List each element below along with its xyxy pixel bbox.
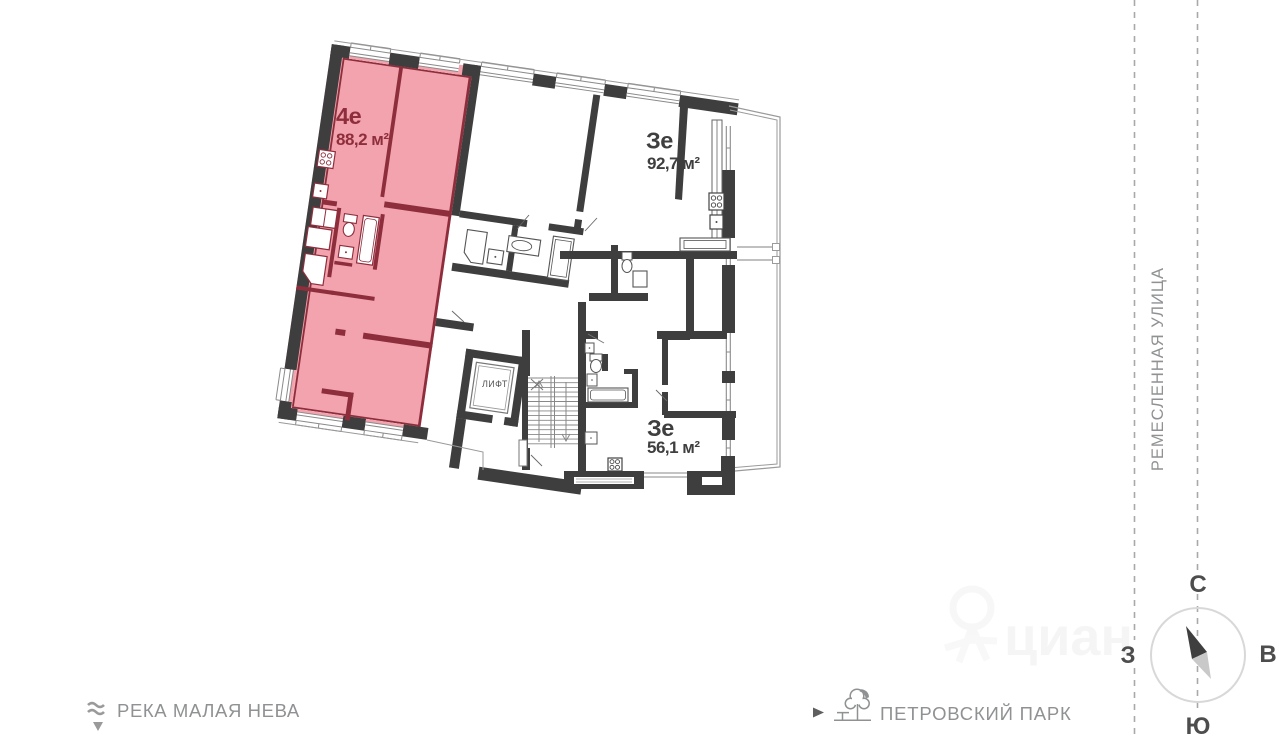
svg-text:88,2 м²: 88,2 м² bbox=[336, 130, 389, 149]
svg-text:РЕКА МАЛАЯ НЕВА: РЕКА МАЛАЯ НЕВА bbox=[117, 700, 300, 721]
svg-text:С: С bbox=[1189, 571, 1206, 598]
svg-text:РЕМЕСЛЕННАЯ УЛИЦА: РЕМЕСЛЕННАЯ УЛИЦА bbox=[1149, 267, 1167, 471]
svg-text:В: В bbox=[1259, 641, 1276, 668]
svg-text:56,1 м²: 56,1 м² bbox=[647, 438, 700, 457]
svg-text:4е: 4е bbox=[336, 103, 362, 129]
svg-text:92,7 м²: 92,7 м² bbox=[647, 154, 700, 173]
svg-text:Ю: Ю bbox=[1186, 713, 1211, 736]
svg-text:циан: циан bbox=[1004, 607, 1133, 667]
svg-text:ЛИФТ: ЛИФТ bbox=[482, 379, 508, 389]
svg-text:З: З bbox=[1120, 642, 1135, 669]
svg-text:Зе: Зе bbox=[646, 128, 673, 154]
svg-text:ПЕТРОВСКИЙ ПАРК: ПЕТРОВСКИЙ ПАРК bbox=[880, 703, 1072, 724]
